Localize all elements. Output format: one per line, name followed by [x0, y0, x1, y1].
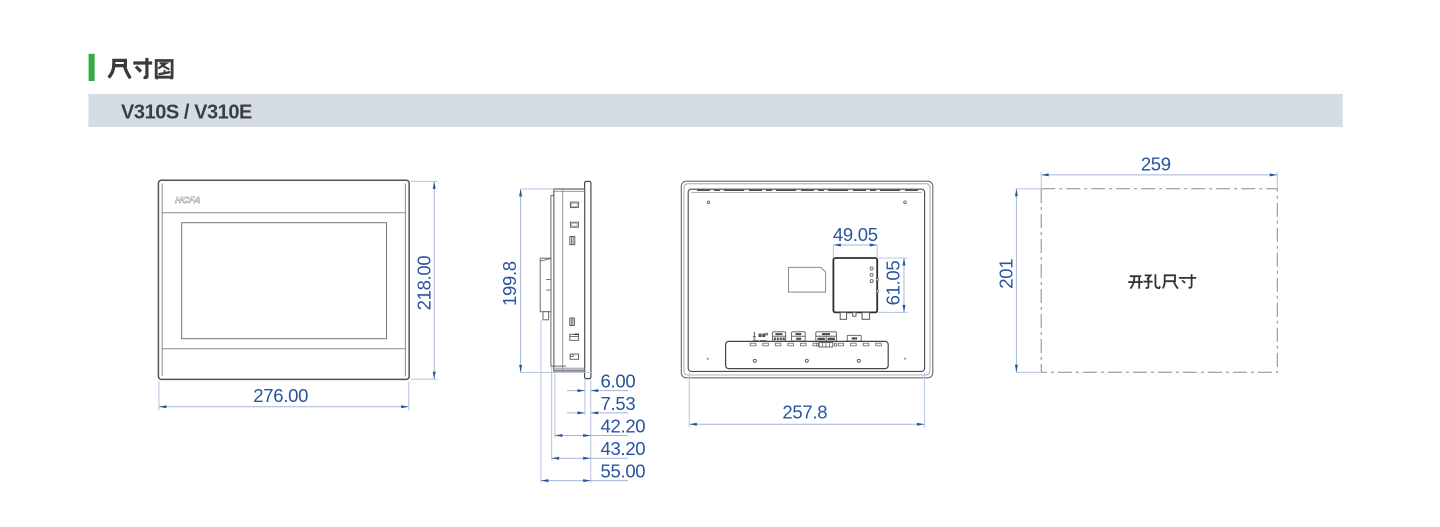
svg-text:201: 201 [996, 259, 1017, 289]
svg-text:61.05: 61.05 [883, 261, 904, 306]
svg-text:218.00: 218.00 [413, 256, 434, 311]
svg-text:257.8: 257.8 [782, 402, 827, 423]
svg-text:276.00: 276.00 [253, 385, 308, 406]
svg-text:7.53: 7.53 [601, 393, 636, 414]
svg-text:43.20: 43.20 [601, 438, 646, 459]
svg-text:49.05: 49.05 [833, 224, 878, 245]
svg-text:HCFA: HCFA [175, 195, 201, 205]
svg-text:199.8: 199.8 [499, 261, 520, 306]
svg-text:259: 259 [1141, 153, 1171, 174]
svg-text:6.00: 6.00 [601, 371, 636, 392]
svg-text:V310S / V310E: V310S / V310E [121, 102, 252, 124]
svg-text:42.20: 42.20 [601, 416, 646, 437]
svg-text:55.00: 55.00 [601, 461, 646, 482]
